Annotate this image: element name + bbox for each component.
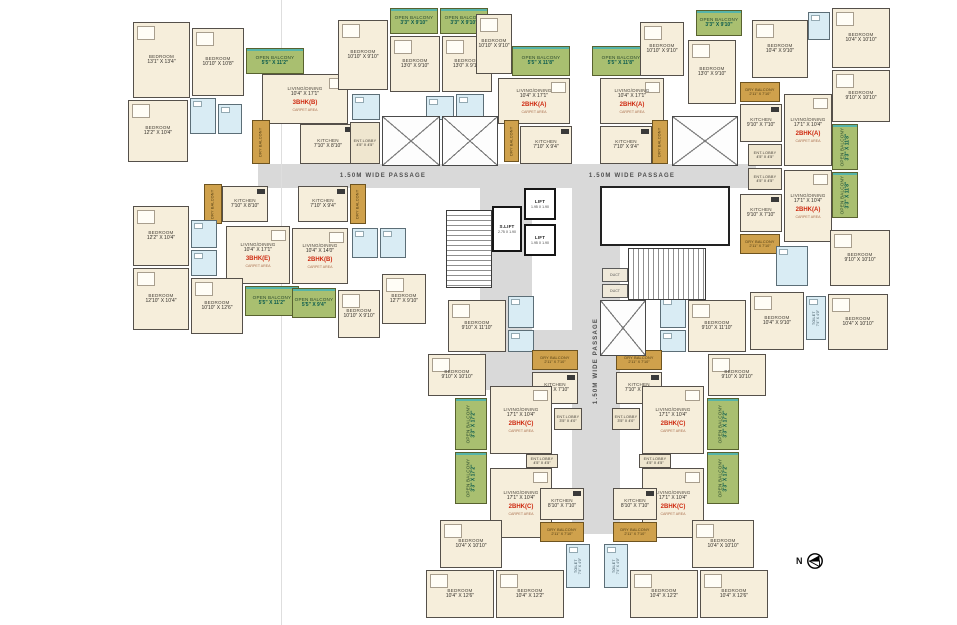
kitchen: KITCHEN7'10" X 8'10" <box>300 124 356 164</box>
service-lift: S.LIFT2.75 X 1.90 <box>492 206 522 252</box>
room-dimensions: 10'4" X 9'10" <box>763 321 791 327</box>
room-label: OPEN BALCONY <box>717 459 722 498</box>
living-dining-room: LIVING/DINING17'1" X 10'4"2BHK(A)CARPET … <box>784 94 832 166</box>
bedroom: BEDROOM10'10" X 9'10" <box>640 22 684 76</box>
room-dimensions: 10'10" X 9'10" <box>646 49 677 55</box>
room-dimensions: 7'10" X 9'4" <box>533 145 558 151</box>
carpet-area-note: CARPET AREA <box>307 265 332 269</box>
room-dimensions: 5'5" X 11'8" <box>608 61 635 67</box>
open-balcony: OPEN BALCONY3'3" X 17'2" <box>707 398 739 450</box>
room-dimensions: 9'10" X 10'10" <box>845 96 876 102</box>
room-dimensions: 3'3" X 11'8" <box>845 134 851 161</box>
room-dimensions: 10'4" X 10'10" <box>455 544 486 550</box>
open-balcony: OPEN BALCONY3'3" X 17'2" <box>707 452 739 504</box>
carpet-area-note: CARPET AREA <box>245 264 270 268</box>
unit-type-label: 3BHK(B) <box>293 100 318 107</box>
bedroom: BEDROOM13'0" X 9'10" <box>390 36 440 92</box>
room-dimensions: 10'4" X 17'1" <box>291 92 319 98</box>
room-dimensions: 3'3" X 11'8" <box>845 182 851 209</box>
entrance-lobby: ENT.LOBBY4'5" X 4'5" <box>748 168 782 190</box>
room-label: DRY BALCONY <box>211 189 215 218</box>
north-label: N <box>796 556 803 566</box>
toilet <box>190 98 216 134</box>
room-dimensions: 2'11" X 7'10" <box>628 360 649 364</box>
dry-balcony: DRY BALCONY <box>252 120 270 164</box>
open-balcony: OPEN BALCONY5'5" X 11'8" <box>512 46 570 76</box>
bedroom: BEDROOM13'1" X 13'4" <box>133 22 190 98</box>
kitchen: KITCHEN7'10" X 9'4" <box>298 186 348 222</box>
room-dimensions: 17'1" X 10'4" <box>794 123 822 129</box>
bedroom: BEDROOM12'10" X 10'4" <box>133 268 189 330</box>
unit-type-label: 2BHK(A) <box>522 102 547 109</box>
carpet-area-note: CARPET AREA <box>660 512 685 516</box>
room-dimensions: 10'4" X 17'1" <box>244 248 272 254</box>
room-dimensions: 5'5" X 11'2" <box>262 61 289 67</box>
entrance-lobby: ENT.LOBBY3'5" X 4'0" <box>612 408 640 430</box>
carpet-area-note: CARPET AREA <box>619 110 644 114</box>
lift: LIFT1.95 X 1.90 <box>524 188 556 220</box>
room-dimensions: 7'10" X 8'10" <box>314 144 342 150</box>
living-dining-room: LIVING/DINING17'1" X 10'4"2BHK(C)CARPET … <box>642 386 704 454</box>
floor-plan: N 1.50M WIDE PASSAGE1.50M WIDE PASSAGE1.… <box>0 0 957 625</box>
room-dimensions: 5'5" X 11'8" <box>528 61 555 67</box>
open-balcony: OPEN BALCONY5'5" X 11'2" <box>246 48 304 74</box>
room-dimensions: 10'4" X 9'10" <box>766 49 794 55</box>
bedroom: BEDROOM12'2" X 10'4" <box>128 100 188 162</box>
lift-label: S.LIFT <box>500 224 515 229</box>
lift-shaft-void <box>442 116 498 166</box>
living-dining-room: LIVING/DINING10'4" X 17'1"3BHK(B)CARPET … <box>262 74 348 124</box>
lift-shaft-void <box>382 116 440 166</box>
room-dimensions: 10'4" X 12'6" <box>720 594 748 600</box>
room-dimensions: 10'4" X 14'0" <box>306 249 334 255</box>
bedroom: BEDROOM10'10" X 9'10" <box>476 14 512 74</box>
room-dimensions: 2'11" X 7'10" <box>624 532 645 536</box>
unit-type-label: 2BHK(B) <box>308 257 333 264</box>
room-dimensions: 4'5" X 4'5" <box>756 155 773 159</box>
lift-shaft-void <box>600 300 646 356</box>
lift: LIFT1.95 X 1.90 <box>524 224 556 256</box>
toilet <box>660 296 686 328</box>
staircase <box>446 210 492 288</box>
bedroom: BEDROOM9'10" X 10'10" <box>832 70 890 122</box>
entrance-lobby: ENT.LOBBY3'5" X 4'0" <box>554 408 582 430</box>
carpet-area-note: CARPET AREA <box>508 512 533 516</box>
bedroom: BEDROOM10'4" X 10'10" <box>692 520 754 568</box>
entrance-lobby: ENT.LOBBY4'5" X 4'5" <box>748 144 782 166</box>
toilet <box>660 330 686 352</box>
room-dimensions: 9'10" X 10'10" <box>441 375 472 381</box>
unit-type-label: 2BHK(C) <box>661 504 686 511</box>
living-dining-room: LIVING/DINING10'4" X 14'0"2BHK(B)CARPET … <box>292 228 348 284</box>
bedroom: BEDROOM10'10" X 10'8" <box>192 28 244 96</box>
entrance-lobby: ENT.LOBBY4'5" X 4'5" <box>350 122 380 164</box>
dry-balcony: DRY BALCONY2'11" X 7'10" <box>613 522 657 542</box>
room-dimensions: 9'10" X 7'10" <box>747 213 775 219</box>
room-dimensions: 9'10" X 11'10" <box>702 326 733 332</box>
passage-label: 1.50M WIDE PASSAGE <box>340 173 426 179</box>
carpet-area-note: CARPET AREA <box>795 215 820 219</box>
room-label: DRY BALCONY <box>356 189 360 218</box>
lift-dimensions: 2.75 X 1.90 <box>498 230 516 234</box>
carpet-area-note: CARPET AREA <box>508 429 533 433</box>
room-dimensions: 7'10" X 8'10" <box>231 204 259 210</box>
living-dining-room: LIVING/DINING10'4" X 17'1"2BHK(A)CARPET … <box>498 78 570 124</box>
kitchen: KITCHEN9'10" X 7'10" <box>740 104 782 142</box>
carpet-area-note: CARPET AREA <box>660 429 685 433</box>
living-dining-room: LIVING/DINING10'4" X 17'1"3BHK(E)CARPET … <box>226 226 290 284</box>
toilet <box>191 250 217 276</box>
room-dimensions: 17'1" X 10'4" <box>794 199 822 205</box>
room-label: OPEN BALCONY <box>717 405 722 444</box>
room-dimensions: 10'4" X 12'2" <box>650 594 678 600</box>
unit-type-label: 2BHK(A) <box>620 102 645 109</box>
toilet <box>191 220 217 248</box>
room-label: DRY BALCONY <box>509 126 513 155</box>
room-dimensions: 3'3" X 17'2" <box>723 464 729 491</box>
bedroom: BEDROOM10'4" X 12'6" <box>700 570 768 618</box>
lift-shaft-void <box>672 116 738 166</box>
room-label: OPEN BALCONY <box>465 459 470 498</box>
room-dimensions: 2'11" X 7'10" <box>551 532 572 536</box>
room-dimensions: 5'5" X 9'4" <box>302 303 326 309</box>
bedroom: BEDROOM10'4" X 10'10" <box>440 520 502 568</box>
entrance-lobby: ENT.LOBBY4'5" X 4'5" <box>526 454 558 468</box>
toilet: TOILET7'4" X 4'0" <box>566 544 590 588</box>
unit-type-label: 2BHK(C) <box>509 421 534 428</box>
carpet-area-note: CARPET AREA <box>292 108 317 112</box>
room-dimensions: 10'4" X 10'10" <box>845 38 876 44</box>
bedroom: BEDROOM9'10" X 10'10" <box>830 230 890 286</box>
room-dimensions: 17'1" X 10'4" <box>659 496 687 502</box>
room-dimensions: 9'10" X 11'10" <box>462 326 493 332</box>
room-dimensions: 10'10" X 9'10" <box>343 314 374 320</box>
room-dimensions: 8'10" X 7'10" <box>548 504 576 510</box>
north-indicator: N <box>796 552 824 570</box>
room-dimensions: 7'4" X 4'0" <box>578 558 582 574</box>
unit-type-label: 2BHK(C) <box>661 421 686 428</box>
unit-type-label: 2BHK(A) <box>796 131 821 138</box>
open-balcony: OPEN BALCONY3'3" X 17'2" <box>455 398 487 450</box>
room-dimensions: 2'11" X 7'10" <box>749 92 770 96</box>
dry-balcony: DRY BALCONY <box>504 120 519 162</box>
room-dimensions: 4'5" X 4'5" <box>533 461 550 465</box>
kitchen: KITCHEN7'10" X 8'10" <box>222 186 268 222</box>
room-dimensions: 3'5" X 4'0" <box>617 419 634 423</box>
unit-type-label: 2BHK(C) <box>509 504 534 511</box>
room-dimensions: 10'4" X 17'1" <box>618 94 646 100</box>
room-dimensions: 10'4" X 12'6" <box>446 594 474 600</box>
bedroom: BEDROOM10'4" X 10'10" <box>832 8 890 68</box>
carpet-area-note: CARPET AREA <box>521 110 546 114</box>
carpet-area-note: CARPET AREA <box>795 139 820 143</box>
room-dimensions: 17'1" X 10'4" <box>507 413 535 419</box>
kitchen: KITCHEN8'10" X 7'10" <box>613 488 657 520</box>
room-label: OPEN BALCONY <box>839 128 844 167</box>
room-dimensions: 3'3" X 17'2" <box>471 410 477 437</box>
bedroom: BEDROOM10'10" X 9'10" <box>338 20 388 90</box>
kitchen: KITCHEN7'10" X 9'4" <box>520 126 572 164</box>
room-dimensions: 3'3" X 17'2" <box>723 410 729 437</box>
room-dimensions: 12'2" X 10'4" <box>147 236 175 242</box>
dry-balcony: DRY BALCONY <box>204 184 222 224</box>
passage-label: 1.50M WIDE PASSAGE <box>589 173 675 179</box>
room-dimensions: 9'10" X 10'10" <box>844 258 875 264</box>
room-dimensions: 3'3" X 17'2" <box>471 464 477 491</box>
room-dimensions: 10'10" X 10'8" <box>202 62 233 68</box>
room-label: OPEN BALCONY <box>465 405 470 444</box>
lift-label: LIFT <box>535 235 545 240</box>
room-label: OPEN BALCONY <box>839 176 844 215</box>
open-balcony: OPEN BALCONY3'3" X 11'8" <box>832 124 858 170</box>
dry-balcony: DRY BALCONY <box>652 120 668 164</box>
passage: 1.50M WIDE PASSAGE <box>508 164 756 188</box>
room-dimensions: 4'5" X 4'5" <box>356 143 373 147</box>
room-dimensions: 5'5" X 11'2" <box>259 301 286 307</box>
room-dimensions: 10'10" X 12'6" <box>201 306 232 312</box>
bedroom: BEDROOM12'2" X 10'4" <box>133 206 189 266</box>
unit-type-label: 3BHK(E) <box>246 256 270 263</box>
room-dimensions: 13'0" X 9'10" <box>698 72 726 78</box>
bedroom: BEDROOM10'4" X 10'10" <box>828 294 888 350</box>
dry-balcony: DRY BALCONY2'11" X 7'10" <box>740 234 780 254</box>
living-dining-room: LIVING/DINING17'1" X 10'4"2BHK(A)CARPET … <box>784 170 832 242</box>
staircase <box>628 248 706 300</box>
room-dimensions: 17'1" X 10'4" <box>507 496 535 502</box>
room-label: DRY BALCONY <box>658 127 662 156</box>
passage: 1.50M WIDE PASSAGE <box>258 164 508 188</box>
open-balcony: OPEN BALCONY3'3" X 17'2" <box>455 452 487 504</box>
open-balcony: OPEN BALCONY3'3" X 9'10" <box>696 10 742 36</box>
toilet <box>776 246 808 286</box>
kitchen: KITCHEN8'10" X 7'10" <box>540 488 584 520</box>
bedroom: BEDROOM10'10" X 12'6" <box>191 278 243 334</box>
room-dimensions: 13'0" X 9'10" <box>401 64 429 70</box>
bedroom: BEDROOM10'4" X 12'2" <box>630 570 698 618</box>
open-balcony: OPEN BALCONY3'3" X 11'8" <box>832 172 858 218</box>
room-dimensions: 10'4" X 10'10" <box>707 544 738 550</box>
room-dimensions: 2'11" X 7'10" <box>749 244 770 248</box>
bedroom: BEDROOM9'10" X 10'10" <box>428 354 486 396</box>
room-dimensions: 10'4" X 12'2" <box>516 594 544 600</box>
room-dimensions: 10'4" X 17'1" <box>520 94 548 100</box>
lift-dimensions: 1.95 X 1.90 <box>531 241 549 245</box>
room-dimensions: 9'10" X 10'10" <box>721 375 752 381</box>
living-dining-room: LIVING/DINING10'4" X 17'1"2BHK(A)CARPET … <box>600 78 664 124</box>
bedroom: BEDROOM10'4" X 12'2" <box>496 570 564 618</box>
dry-balcony: DRY BALCONY2'11" X 7'10" <box>740 82 780 102</box>
room-dimensions: 3'5" X 4'0" <box>559 419 576 423</box>
toilet <box>352 228 378 258</box>
unit-type-label: 2BHK(A) <box>796 207 821 214</box>
dry-balcony: DRY BALCONY <box>350 184 366 224</box>
bedroom: BEDROOM10'4" X 9'10" <box>750 292 804 350</box>
toilet <box>508 296 534 328</box>
room-dimensions: 7'10" X 9'4" <box>613 145 638 151</box>
room-dimensions: 10'4" X 10'10" <box>842 322 873 328</box>
room-dimensions: 9'10" X 7'10" <box>747 123 775 129</box>
lift-label: LIFT <box>535 199 545 204</box>
open-balcony: OPEN BALCONY5'5" X 11'2" <box>245 286 299 316</box>
room-dimensions: 7'4" X 4'0" <box>616 558 620 574</box>
room-dimensions: 4'5" X 4'5" <box>646 461 663 465</box>
bedroom: BEDROOM9'10" X 11'10" <box>688 300 746 352</box>
toilet <box>352 94 380 120</box>
room-dimensions: 10'10" X 9'10" <box>347 55 378 61</box>
open-balcony: OPEN BALCONY3'3" X 9'10" <box>390 8 438 34</box>
duct: DUCT <box>602 268 628 282</box>
living-dining-room: LIVING/DINING17'1" X 10'4"2BHK(C)CARPET … <box>490 386 552 454</box>
room-dimensions: 2'11" X 7'10" <box>544 360 565 364</box>
bedroom: BEDROOM9'10" X 10'10" <box>708 354 766 396</box>
bedroom: BEDROOM9'10" X 11'10" <box>448 300 506 352</box>
room-dimensions: 12'2" X 10'4" <box>144 131 172 137</box>
room-dimensions: 3'3" X 9'10" <box>450 21 477 27</box>
open-balcony: OPEN BALCONY5'5" X 9'4" <box>292 288 336 318</box>
room-dimensions: 17'1" X 10'4" <box>659 413 687 419</box>
toilet: TOILET7'4" X 4'0" <box>806 296 826 340</box>
passage-label: 1.50M WIDE PASSAGE <box>593 318 599 404</box>
room-dimensions: 12'10" X 10'4" <box>145 299 176 305</box>
toilet <box>218 104 242 134</box>
entrance-lobby: ENT.LOBBY4'5" X 4'5" <box>639 454 671 468</box>
bedroom: BEDROOM10'10" X 9'10" <box>338 290 380 338</box>
room-dimensions: 12'7" X 9'10" <box>390 299 418 305</box>
bedroom: BEDROOM13'0" X 9'10" <box>688 40 736 104</box>
bedroom: BEDROOM10'4" X 12'6" <box>426 570 494 618</box>
kitchen: KITCHEN9'10" X 7'10" <box>740 194 782 232</box>
toilet <box>380 228 406 258</box>
dry-balcony: DRY BALCONY2'11" X 7'10" <box>532 350 578 370</box>
duct: DUCT <box>602 284 628 298</box>
bedroom: BEDROOM12'7" X 9'10" <box>382 274 426 324</box>
room-dimensions: 3'3" X 9'10" <box>705 23 732 29</box>
room-dimensions: 3'3" X 9'10" <box>400 21 427 27</box>
toilet <box>808 12 830 40</box>
dry-balcony: DRY BALCONY2'11" X 7'10" <box>540 522 584 542</box>
room-dimensions: 4'5" X 4'5" <box>756 179 773 183</box>
refuge-room <box>600 186 730 246</box>
toilet: TOILET7'4" X 4'0" <box>604 544 628 588</box>
room-dimensions: 10'10" X 9'10" <box>478 44 509 50</box>
lift-dimensions: 1.95 X 1.90 <box>531 205 549 209</box>
room-dimensions: 7'4" X 4'0" <box>816 310 820 326</box>
toilet <box>508 330 534 352</box>
north-arrow-icon <box>806 552 824 570</box>
room-label: DRY BALCONY <box>259 127 263 156</box>
room-dimensions: 7'10" X 9'4" <box>310 204 335 210</box>
bedroom: BEDROOM10'4" X 9'10" <box>752 20 808 78</box>
kitchen: KITCHEN7'10" X 9'4" <box>600 126 652 164</box>
room-dimensions: 8'10" X 7'10" <box>621 504 649 510</box>
room-dimensions: 13'1" X 13'4" <box>147 60 175 66</box>
